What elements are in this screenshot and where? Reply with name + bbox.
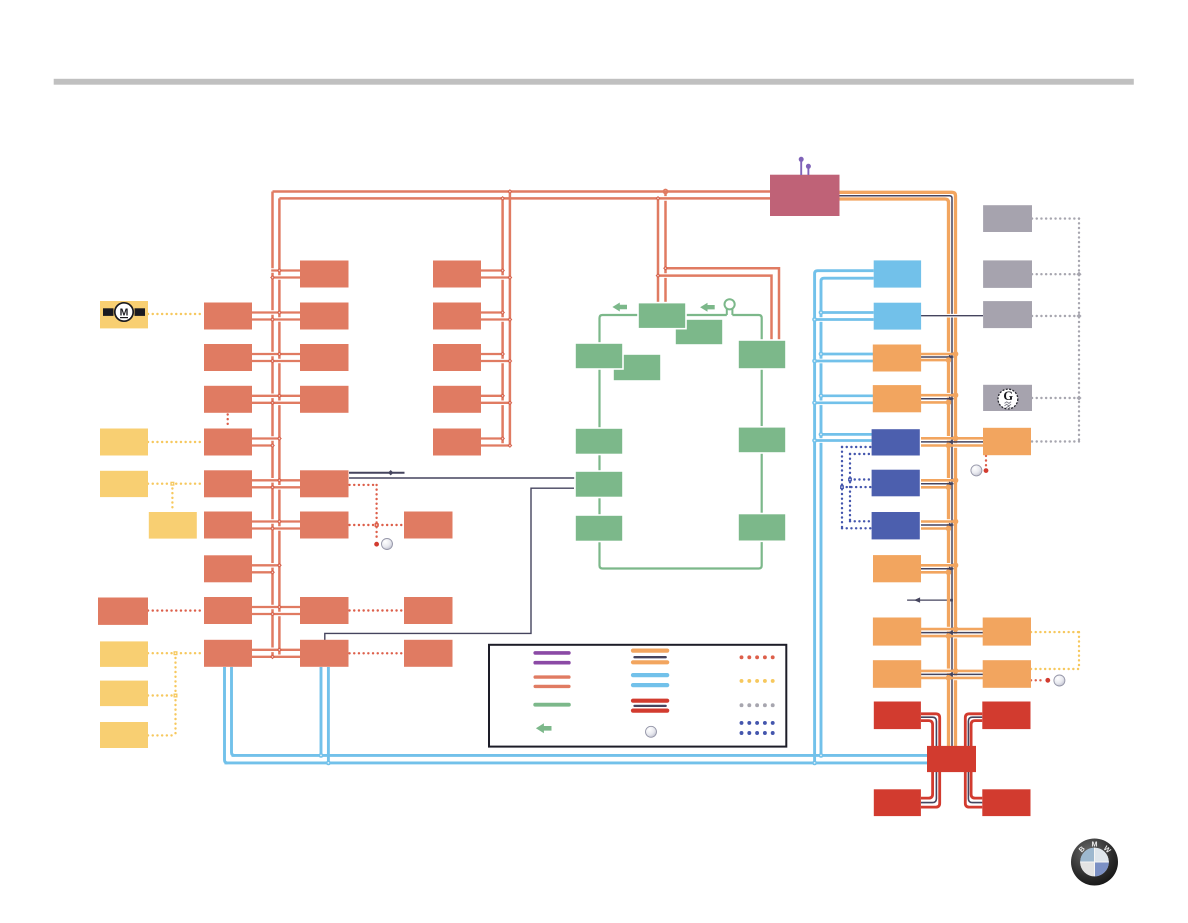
svg-text:M: M: [1092, 839, 1098, 848]
svg-text:M: M: [120, 306, 129, 318]
svg-text:G: G: [1003, 389, 1013, 403]
